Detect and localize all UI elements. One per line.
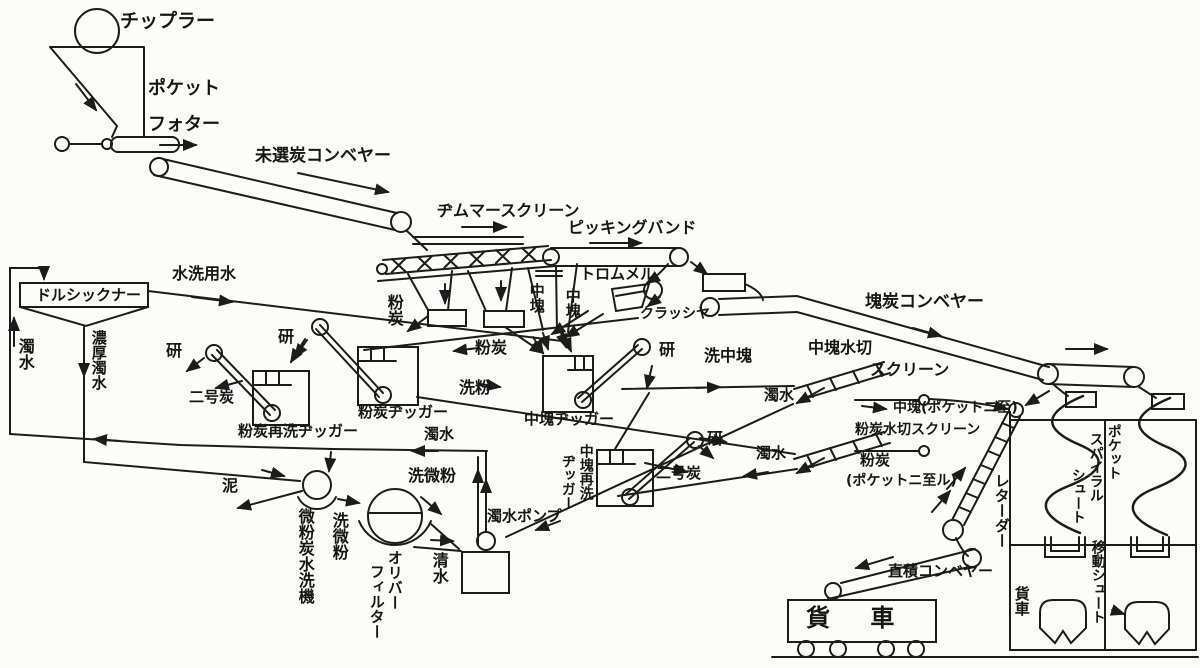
no2-coal-left-label: 二号炭: [189, 390, 234, 406]
coal-washing-flow-diagram: チップラー ポケット フォター 未選炭コンベヤー ヂムマースクリーン ピッキング…: [0, 0, 1200, 668]
pocket-spiral-chute-label-3: シュート: [1070, 468, 1085, 524]
medium-to-pocket-label: 中塊(ポケットニ至): [893, 401, 1018, 416]
fine-coal-chute-label: 粉炭: [385, 294, 402, 326]
medium-lump-2-label: 中塊: [564, 288, 580, 318]
freight-car-right-label: 貨車: [1013, 586, 1029, 616]
medium-dewater-screen-label-1: 中塊水切: [808, 340, 872, 357]
fine-powder-washer-label: 微粉炭水洗機: [296, 508, 313, 604]
lump-coal-conveyor-label: 塊炭コンベヤー: [865, 294, 984, 312]
refuse-3-label: 研: [659, 342, 675, 359]
fine-coal-jig-shape: [295, 319, 418, 405]
retarder-label: レターダー: [993, 473, 1009, 548]
no2-coal-center-label: 二号炭: [656, 466, 701, 482]
washed-medium-lump-label: 洗中塊: [704, 348, 752, 365]
raw-coal-conveyor-line: [150, 158, 427, 250]
muddy-water-left-label: 濁水: [16, 338, 33, 370]
fine-coal-rewash-jig-label: 粉炭再洗ヂッガー: [238, 424, 358, 440]
pocket-spiral-chute-label-2: スパイラル: [1088, 432, 1103, 502]
crusher-label: クラッシヤ: [640, 307, 710, 322]
muddy-water-upper-label: 濁水: [764, 388, 794, 404]
picking-band-label: ピッキングバンド: [568, 220, 696, 237]
tippler-label: チップラー: [120, 12, 215, 32]
wash-water-label: 水洗用水: [172, 266, 236, 283]
medium-lump-1-label: 中塊: [528, 283, 544, 313]
dorr-thickener-label: ドルシックナー: [36, 288, 141, 304]
medium-rewash-jig-label-1: 中塊再洗: [578, 444, 593, 500]
fine-to-pocket-label-1: 粉炭: [860, 453, 890, 469]
fine-coal-stream-label: 粉炭: [475, 340, 507, 357]
direct-loading-conveyor-label: 直積コンベヤー: [888, 564, 993, 580]
medium-lump-jig-shape: [533, 333, 652, 449]
clean-water-label: 清水: [430, 552, 447, 584]
medium-lump-jig-label: 中塊ヂッガー: [524, 412, 614, 428]
refuse-1-label: 研: [166, 343, 182, 360]
muddy-water-center-label: 濁水: [424, 427, 454, 443]
washed-fines-label: 洗粉: [459, 380, 491, 397]
trommel-label: トロムメル: [580, 267, 655, 283]
fine-dewater-screen-label: 粉炭水切スクリーン: [855, 423, 980, 438]
freight-car-bottom-label: 貨 車: [806, 606, 910, 631]
muddy-water-lower-label: 濁水: [756, 446, 786, 462]
muddy-water-pump-label: 濁水ポンプ: [487, 509, 562, 525]
pocket-spiral-chute-label-1: ポケット: [1106, 424, 1121, 480]
diagram-linework: [0, 0, 1200, 668]
medium-rewash-jig-label-2: ヂッガー: [560, 454, 575, 510]
zimmer-screen-label: ヂムマースクリーン: [437, 203, 579, 220]
raw-coal-conveyor-label: 未選炭コンベヤー: [255, 148, 391, 166]
oliver-filter-label-1: オリバー: [386, 550, 402, 610]
pocket-label: ポケット: [148, 80, 220, 99]
fine-to-pocket-label-2: (ポケットニ至ル): [846, 474, 957, 489]
washed-fine-powder-h-label: 洗微粉: [408, 468, 456, 485]
refuse-2-label: 研: [278, 329, 294, 346]
medium-dewater-screen-label-2: スクリーン: [870, 362, 949, 379]
thick-muddy-water-label: 濃厚濁水: [90, 330, 106, 390]
washed-fine-powder-v-label: 洗微粉: [330, 512, 347, 560]
moving-chute-label: 移動シュート: [1090, 540, 1105, 624]
feeder-label: フォター: [148, 116, 220, 135]
fine-coal-jig-label: 粉炭ヂッガー: [358, 405, 448, 421]
mud-label: 泥: [222, 478, 238, 495]
refuse-4-label: 研: [707, 431, 723, 448]
fine-coal-rewash-jig-shape: [187, 339, 309, 425]
oliver-filter-label-2: フィルター: [368, 564, 384, 639]
